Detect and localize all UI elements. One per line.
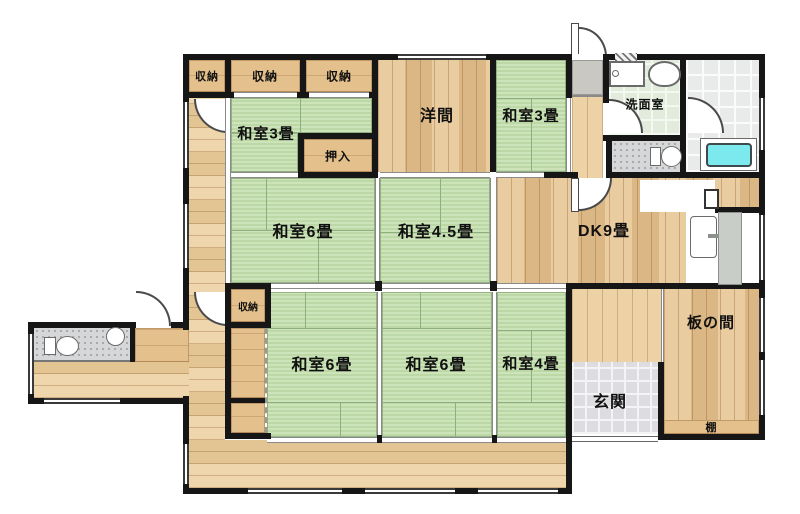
wall-wash-bath [680,54,686,141]
mat-line [382,328,492,329]
room-label-washitsu3-tl: 和室3畳 [237,123,294,144]
room-label-washitsu6-m: 和室6畳 [273,218,334,242]
sliding-door [497,283,566,289]
window [183,204,189,268]
door-arc-porch [579,27,607,57]
mat-line [497,402,566,403]
doorway-gap [572,54,603,60]
wall-wash-bottom [603,135,686,141]
window [365,488,455,494]
wc-lower-partition [34,360,130,362]
post [492,435,497,443]
wall-closet-strip-bottom [225,433,271,439]
wing-wood-floor [135,328,189,362]
genkan-step-line [572,436,658,439]
wall-closet-div1 [225,54,231,98]
floor-plan: 収納 収納 収納 和室3畳 押入 洋間 和室3畳 洗面室 和室6畳 和室4.5畳… [0,0,800,514]
window [44,398,120,404]
corridor-left-floor [189,97,225,440]
window [28,334,34,394]
mat-line [382,402,492,403]
window [183,102,189,168]
wall-bath-block-bottom [606,172,765,178]
room-label-washitsu45: 和室4.5畳 [398,218,474,242]
mat-line [340,402,341,437]
veranda-floor [189,440,566,488]
wall-dk-top [544,172,578,178]
wall-washitsu3c-right [566,54,572,98]
wall-closet-div2 [300,54,306,98]
room-label-tana: 棚 [706,419,717,435]
window [248,488,342,494]
toilet-tank-icon [650,147,661,166]
sliding-door [382,283,490,289]
room-label-genkan: 玄関 [593,388,627,412]
sliding-door [225,98,231,283]
door-leaf [571,178,579,212]
wall-closet-mid-bottom [225,322,271,328]
partition-line [661,289,664,362]
closet-strip-floor-1 [231,328,265,398]
toilet-bowl-icon [56,336,79,356]
wall-genkan-itanoma [658,362,664,434]
mat-line [300,98,301,133]
porch-landing [572,60,603,95]
wall-youma-right [490,54,496,172]
sliding-door [566,98,571,172]
hall-above-genkan-floor [572,289,661,362]
room-label-youma: 洋間 [420,102,454,126]
washbasin-icon [648,61,681,87]
wall-oshiire-top [298,133,378,139]
room-label-washitsu3-c: 和室3畳 [502,105,559,126]
sliding-door [377,292,382,437]
room-label-dk: DK9畳 [578,217,630,241]
sliding-door [380,172,490,178]
sliding-door [496,172,544,178]
wall-closet-strip-div [225,398,265,403]
room-label-closet-a: 収納 [195,68,219,84]
kitchen-faucet-icon [708,234,718,238]
faucet-dot-icon [612,70,619,77]
vent-hatch [615,53,637,61]
room-label-itanoma: 板の間 [687,312,735,333]
window [759,360,765,415]
window [478,488,558,494]
mat-line [455,402,456,437]
room-label-washitsu6-bl: 和室6畳 [292,351,353,375]
mat-line [267,328,377,329]
sliding-door [490,178,497,283]
wall-wc-lower-right [130,328,135,362]
round-basin-icon [106,327,125,346]
toilet-tank-icon [44,337,56,355]
sliding-door [271,283,375,289]
sliding-door [231,172,298,178]
genkan-step-line [572,441,658,444]
window [183,444,189,484]
dashed-boundary [265,328,267,433]
post [490,281,497,291]
post [375,281,382,291]
window [759,298,765,352]
window [759,215,765,280]
room-label-oshiire: 押入 [325,148,351,165]
sliding-door-veranda [267,437,566,443]
window [759,98,765,150]
room-label-closet-b: 収納 [252,68,278,85]
mat-line [420,292,421,328]
post [377,435,382,443]
wall-wing-top-right [171,322,189,328]
wall-oshiire-bottom [298,172,378,178]
sliding-door [492,292,497,437]
porch-hall-floor [572,97,603,178]
room-label-washitsu6-bm: 和室6畳 [406,351,467,375]
wing-corridor-floor [34,362,189,398]
itanoma-floor [664,289,759,420]
room-label-washitsu4: 和室4畳 [502,353,559,374]
landing-edge-line [572,95,603,97]
bathtub [706,143,752,167]
room-label-closet-mid: 収納 [238,299,258,314]
wall-closet-strip-left [225,289,231,439]
kitchen-counter [718,212,742,285]
wall-youma-left [372,54,378,178]
sliding-door [234,92,297,98]
water-heater-icon [704,189,719,209]
toilet-bowl-icon [661,146,682,167]
door-arc-wing [136,291,171,326]
sliding-door [375,178,380,283]
wall-veranda-right [566,434,572,494]
mat-line [305,292,306,328]
room-label-senmen: 洗面室 [625,96,664,113]
wall-genkan-left [566,289,572,434]
closet-strip-floor-2 [231,403,265,433]
sliding-door [309,92,369,98]
mat-line [266,178,267,230]
room-label-closet-c: 収納 [326,68,352,85]
mat-line [267,402,377,403]
window [398,54,486,60]
